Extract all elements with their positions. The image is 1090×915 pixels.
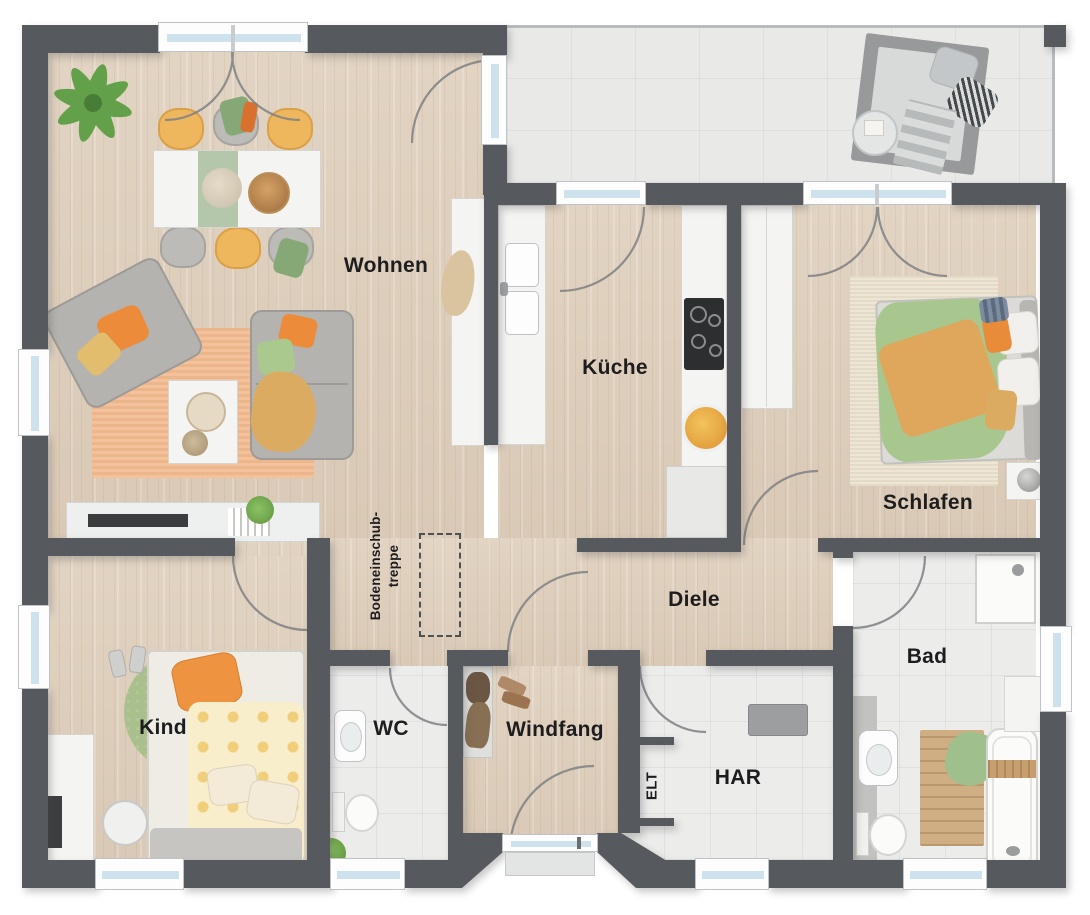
wall-chamfer bbox=[430, 833, 503, 888]
wall-chamfer bbox=[597, 833, 667, 888]
room-label-elt: ELT bbox=[644, 772, 661, 800]
attic-stairs-label: Bodeneinschub- treppe bbox=[366, 511, 404, 621]
wall bbox=[618, 666, 640, 833]
french-door-schlafen bbox=[803, 181, 952, 205]
room-label-wc: WC bbox=[373, 717, 409, 741]
wall bbox=[484, 195, 498, 445]
terrace-door-kueche bbox=[556, 181, 646, 205]
entrance-step bbox=[505, 852, 595, 876]
room-label-windfang: Windfang bbox=[506, 718, 604, 742]
window-kind-left bbox=[18, 605, 50, 689]
wall bbox=[448, 666, 463, 833]
wall bbox=[640, 737, 674, 745]
room-label-kueche: Küche bbox=[582, 356, 648, 380]
wall bbox=[22, 687, 48, 888]
wall-pillar bbox=[1044, 25, 1066, 47]
wall bbox=[640, 818, 674, 826]
wall bbox=[833, 552, 853, 558]
wall bbox=[305, 25, 507, 53]
wall bbox=[1040, 710, 1066, 888]
french-door-wohnen bbox=[158, 22, 308, 52]
wall bbox=[1040, 183, 1066, 628]
floor-plan: Wohnen Küche Schlafen Diele Bad Kind WC … bbox=[0, 0, 1090, 915]
room-label-schlafen: Schlafen bbox=[883, 491, 973, 515]
window-har-bottom bbox=[695, 858, 769, 890]
room-label-har: HAR bbox=[715, 766, 761, 790]
room-label-diele: Diele bbox=[668, 588, 720, 612]
wall bbox=[483, 25, 507, 57]
wall bbox=[330, 650, 390, 666]
wall bbox=[588, 650, 640, 666]
attic-stairs-box bbox=[419, 533, 461, 637]
wall bbox=[833, 626, 853, 860]
window-bad-bottom bbox=[903, 858, 987, 890]
wall bbox=[497, 183, 558, 205]
room-label-bad: Bad bbox=[907, 645, 948, 669]
walls-layer bbox=[0, 0, 1090, 915]
wall bbox=[182, 860, 332, 888]
wall bbox=[22, 434, 48, 609]
wall bbox=[818, 538, 1040, 552]
window-wc-bottom bbox=[330, 858, 405, 890]
wall bbox=[22, 860, 97, 888]
wall bbox=[447, 650, 508, 666]
wall bbox=[307, 538, 330, 860]
entrance-door bbox=[502, 834, 598, 852]
wall bbox=[22, 538, 235, 556]
room-label-kind: Kind bbox=[139, 716, 187, 740]
room-label-wohnen: Wohnen bbox=[344, 254, 428, 278]
wall bbox=[706, 650, 836, 666]
wall bbox=[645, 183, 805, 205]
attic-stairs-line1: Bodeneinschub- bbox=[367, 511, 385, 621]
window-wohnen-left bbox=[18, 349, 50, 436]
wall bbox=[727, 195, 741, 552]
terrace-door-wohnen bbox=[481, 55, 507, 145]
window-kind-bottom bbox=[95, 858, 184, 890]
wall bbox=[950, 183, 1062, 205]
wall bbox=[767, 860, 905, 888]
wall bbox=[22, 25, 48, 351]
attic-stairs-line2: treppe bbox=[385, 511, 403, 621]
wall bbox=[577, 538, 741, 552]
window-bad-right bbox=[1040, 626, 1072, 712]
